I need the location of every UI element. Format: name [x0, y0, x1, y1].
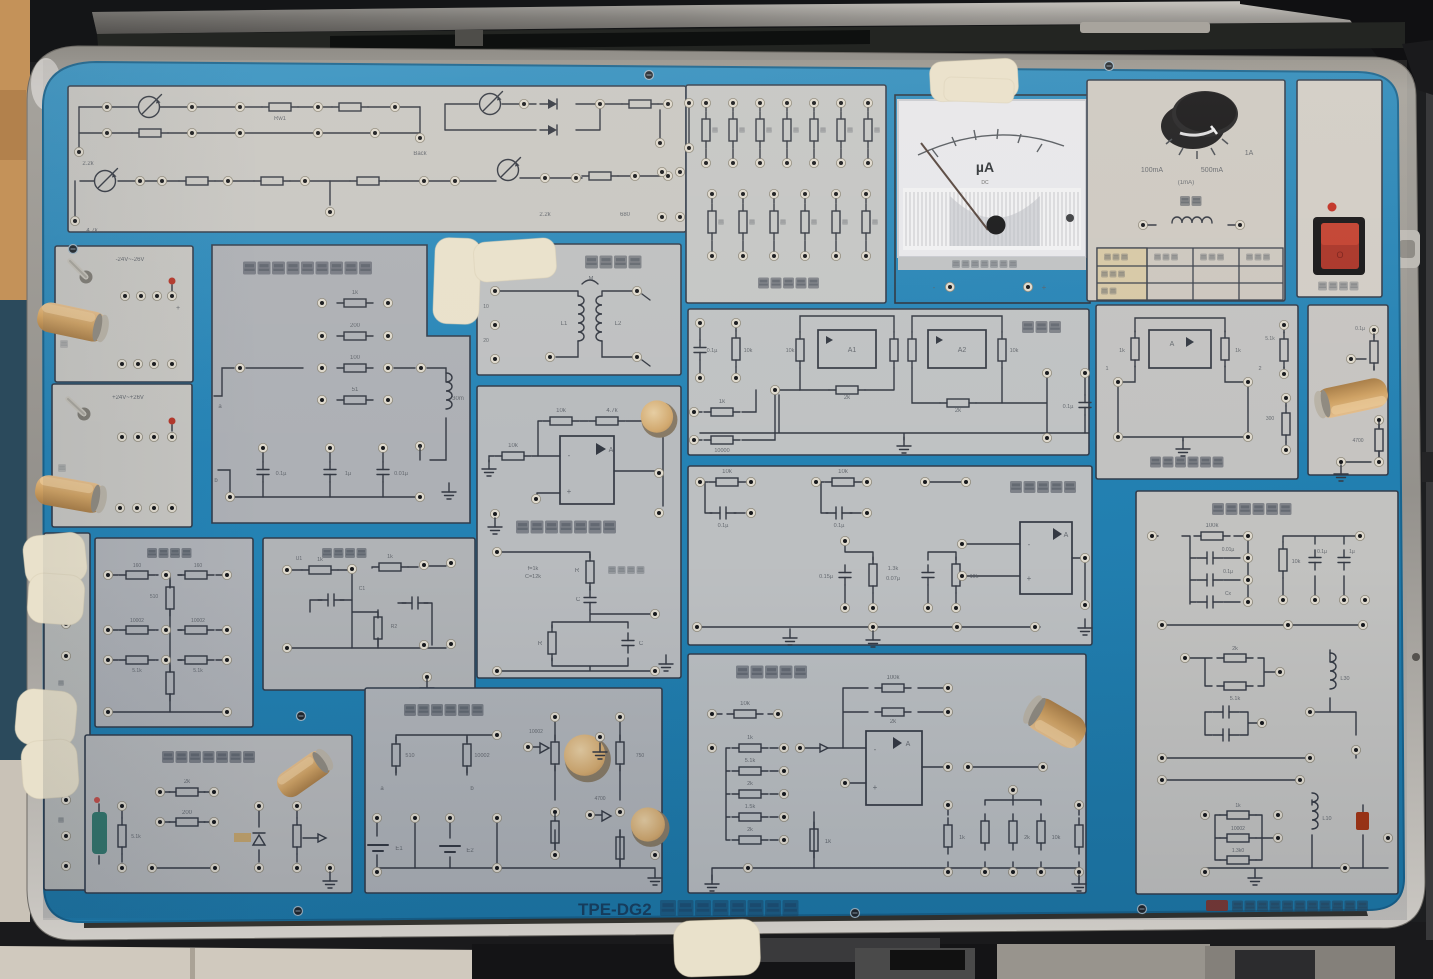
svg-text:A: A: [1064, 532, 1069, 539]
svg-text:-: -: [1028, 540, 1031, 549]
svg-text:1µ: 1µ: [345, 471, 352, 477]
svg-text:0.01µ: 0.01µ: [394, 471, 409, 477]
svg-text:1µ: 1µ: [1349, 549, 1355, 555]
svg-text:100k: 100k: [1205, 523, 1219, 529]
svg-text:10k: 10k: [722, 469, 733, 475]
svg-text:10k: 10k: [838, 469, 849, 475]
svg-text:0.1µ: 0.1µ: [276, 471, 288, 477]
svg-text:+: +: [567, 487, 572, 496]
svg-text:0.01µ: 0.01µ: [1222, 547, 1235, 553]
svg-text:0.1µ: 0.1µ: [1317, 549, 1327, 555]
svg-text:0.1µ: 0.1µ: [718, 523, 730, 529]
svg-text:1k: 1k: [387, 554, 393, 560]
svg-text:0.1µ: 0.1µ: [834, 523, 846, 529]
